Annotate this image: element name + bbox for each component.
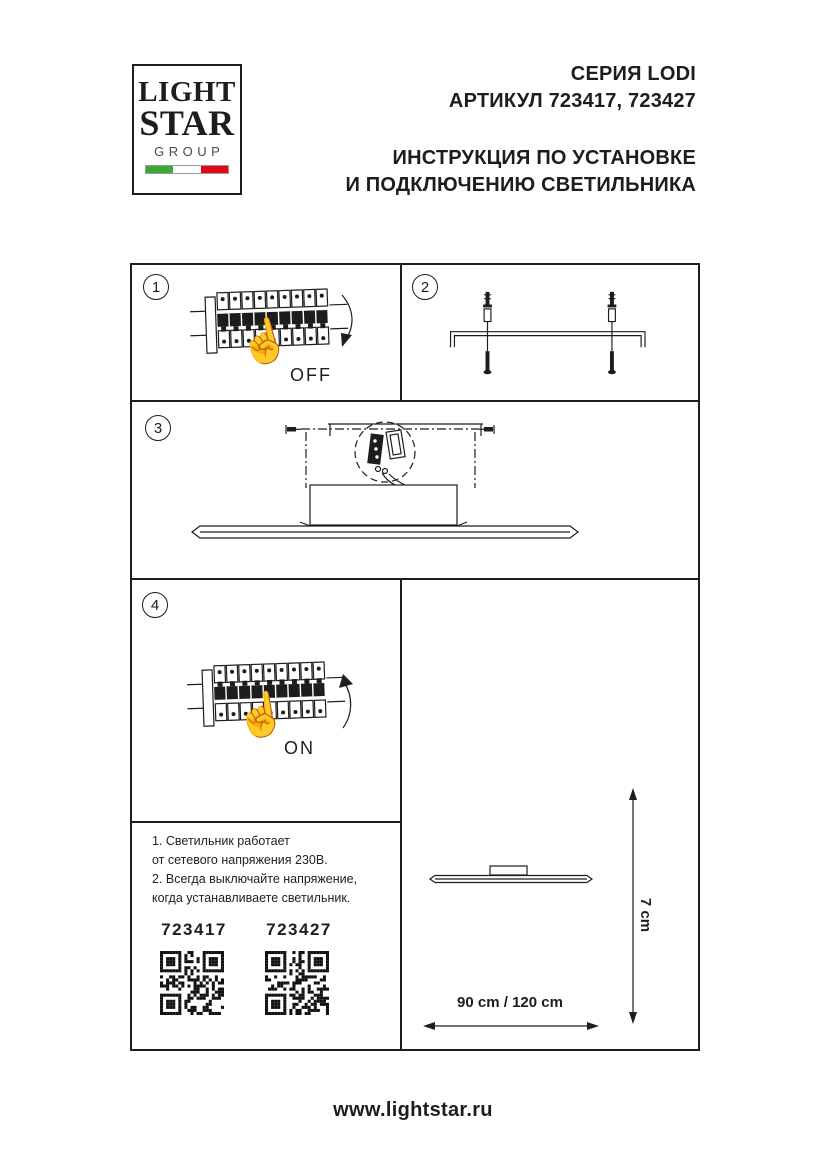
dimensions-panel: 90 cm / 120 cm 7 cm <box>402 580 698 1049</box>
step-3-panel: 3 <box>132 402 698 578</box>
title-line-2: И ПОДКЛЮЧЕНИЮ СВЕТИЛЬНИКА <box>345 172 696 199</box>
step-number: 1 <box>152 279 160 296</box>
website-url: www.lightstar.ru <box>0 1099 826 1122</box>
note-line: когда устанавливаете светильник. <box>152 889 388 908</box>
flag-red <box>201 166 228 173</box>
step-number: 3 <box>154 420 162 437</box>
off-label: OFF <box>290 365 332 386</box>
logo-word-group: GROUP <box>134 145 240 158</box>
instruction-page: LIGHT STAR GROUP СЕРИЯ LODI АРТИКУЛ 7234… <box>0 0 826 1169</box>
arrowhead-down <box>341 333 352 347</box>
step-number: 4 <box>151 597 159 614</box>
width-dimension-label: 90 cm / 120 cm <box>428 994 592 1011</box>
step-number-badge: 4 <box>142 592 168 618</box>
step-number-badge: 3 <box>145 415 171 441</box>
step-number-badge: 2 <box>412 274 438 300</box>
qr-label-723417: 723417 <box>148 920 240 940</box>
canopy-box <box>310 485 457 525</box>
notes-panel: 1. Светильник работает от сетевого напря… <box>132 823 400 1049</box>
logo-word-star: STAR <box>134 107 240 140</box>
step-4-panel: 4 <box>132 580 400 821</box>
page-title: ИНСТРУКЦИЯ ПО УСТАНОВКЕ И ПОДКЛЮЧЕНИЮ СВ… <box>345 145 696 199</box>
pointing-hand-icon: ☝ <box>232 691 290 740</box>
arrow-down-curve <box>342 295 352 339</box>
steps-grid: 1 <box>130 263 700 1051</box>
qr-label-723427: 723427 <box>253 920 345 940</box>
safety-notes: 1. Светильник работает от сетевого напря… <box>152 832 388 908</box>
fixture-assembly-illustration <box>185 416 585 546</box>
lightstar-logo: LIGHT STAR GROUP <box>132 64 242 195</box>
step-1-panel: 1 <box>132 265 400 400</box>
article-numbers: АРТИКУЛ 723417, 723427 <box>449 88 696 115</box>
note-line: от сетевого напряжения 230В. <box>152 851 388 870</box>
note-line: 2. Всегда выключайте напряжение, <box>152 870 388 889</box>
qr-code-723417 <box>160 951 224 1015</box>
italian-flag-stripe-icon <box>145 165 229 174</box>
note-line: 1. Светильник работает <box>152 832 388 851</box>
dimensions-illustration <box>402 580 698 1049</box>
flag-white <box>173 166 200 173</box>
qr-code-723427 <box>265 951 329 1015</box>
height-dimension-label: 7 cm <box>638 885 654 945</box>
step-number: 2 <box>421 279 429 296</box>
on-label: ON <box>284 738 315 759</box>
header-series-block: СЕРИЯ LODI АРТИКУЛ 723417, 723427 <box>449 61 696 115</box>
flag-green <box>146 166 173 173</box>
terminal-block-detail <box>367 430 405 485</box>
mounting-bracket-illustration <box>440 287 675 392</box>
series-title: СЕРИЯ LODI <box>449 61 696 88</box>
step-2-panel: 2 <box>402 265 698 400</box>
arrow-up-curve <box>343 682 351 728</box>
arrowhead-up <box>339 674 353 688</box>
step-number-badge: 1 <box>143 274 169 300</box>
title-line-1: ИНСТРУКЦИЯ ПО УСТАНОВКЕ <box>345 145 696 172</box>
